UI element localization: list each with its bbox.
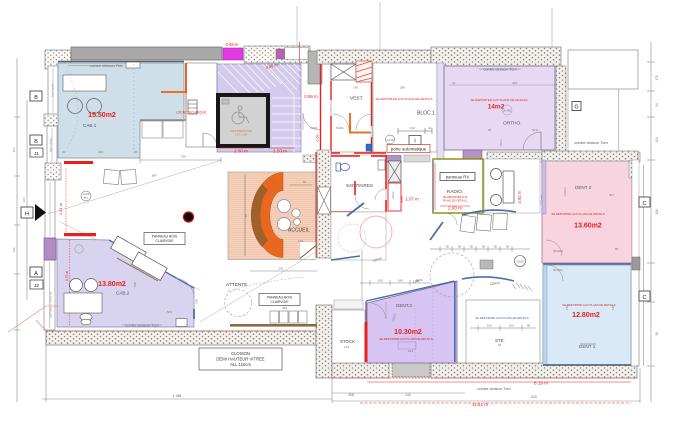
svg-text:CAB.2: CAB.2 [116, 291, 130, 296]
svg-text:12.80m2: 12.80m2 [572, 312, 600, 319]
svg-text:PLANS DE DETAILS: PLANS DE DETAILS [443, 199, 467, 203]
svg-text:198: 198 [133, 282, 137, 287]
svg-text:panneau RX: panneau RX [446, 175, 469, 180]
svg-text:I: I [414, 139, 416, 145]
svg-text:13.80m2: 13.80m2 [98, 281, 126, 288]
svg-text:20: 20 [62, 150, 66, 154]
svg-text:DENT.3: DENT.3 [396, 303, 412, 308]
svg-text:B: B [34, 95, 38, 101]
svg-text:118: 118 [655, 209, 659, 214]
svg-text:SANITAIRES: SANITAIRES [346, 183, 373, 188]
svg-text:36: 36 [244, 214, 248, 218]
svg-text:CLOISON: CLOISON [231, 351, 250, 356]
svg-text:ALL:110cm: ALL:110cm [230, 362, 251, 367]
svg-text:CAB.1: CAB.1 [83, 123, 97, 128]
svg-text:100: 100 [487, 324, 492, 328]
svg-text:1.81 m: 1.81 m [58, 202, 63, 215]
svg-text:baie oscillo: baie oscillo [51, 83, 55, 97]
svg-text:50: 50 [470, 245, 474, 249]
svg-text:36: 36 [134, 150, 138, 154]
svg-text:60x204: 60x204 [553, 268, 563, 272]
svg-text:porte automatique: porte automatique [391, 147, 427, 152]
svg-text:50 8: 50 8 [532, 128, 538, 132]
svg-text:LOCAL TECHNIQUE: LOCAL TECHNIQUE [176, 111, 206, 115]
svg-text:TA/DA: TA/DA [310, 126, 318, 130]
svg-text:baie avec 2 ouvrants: baie avec 2 ouvrants [49, 291, 53, 317]
svg-text:84: 84 [303, 180, 307, 184]
svg-text:contre cloison 7cm: contre cloison 7cm [477, 386, 511, 391]
svg-text:50: 50 [506, 245, 510, 249]
svg-text:DENT 1: DENT 1 [579, 344, 596, 349]
svg-text:436: 436 [12, 147, 16, 152]
svg-text:404: 404 [512, 81, 517, 85]
svg-text:124: 124 [655, 137, 659, 143]
svg-text:390: 390 [12, 247, 16, 252]
svg-text:13.60m2: 13.60m2 [574, 223, 602, 230]
svg-text:70: 70 [452, 81, 456, 85]
svg-text:0.99 m: 0.99 m [304, 94, 318, 99]
svg-text:1.00 x 1.30: 1.00 x 1.30 [235, 134, 248, 137]
svg-text:106: 106 [398, 279, 403, 283]
svg-text:A: A [34, 271, 38, 277]
svg-text:ACCUEIL: ACCUEIL [288, 228, 310, 234]
svg-text:11.61 m: 11.61 m [472, 402, 488, 407]
svg-text:34: 34 [655, 103, 659, 107]
svg-text:VEST.: VEST. [350, 96, 363, 102]
svg-text:175: 175 [655, 75, 659, 81]
svg-text:SE REPORTER AUX PLANS DE DETAI: SE REPORTER AUX PLANS DE DETAILS [379, 337, 432, 341]
svg-text:80: 80 [416, 279, 420, 283]
svg-text:58: 58 [655, 332, 659, 336]
svg-text:3.73 m: 3.73 m [65, 271, 69, 282]
svg-text:300: 300 [181, 155, 186, 159]
svg-text:128: 128 [22, 197, 26, 202]
svg-text:15.50m2: 15.50m2 [88, 112, 116, 119]
svg-text:C: C [642, 295, 646, 301]
svg-text:H: H [25, 212, 29, 218]
svg-text:200: 200 [98, 150, 103, 154]
svg-text:1.07 m: 1.07 m [405, 197, 419, 202]
svg-text:SE REPORTER AUX PLANS DE DETAI: SE REPORTER AUX PLANS DE DETAILS [475, 316, 528, 320]
svg-text:BLOC.1: BLOC.1 [417, 111, 435, 117]
svg-text:190: 190 [195, 299, 199, 304]
svg-text:10.30m2: 10.30m2 [394, 329, 422, 336]
svg-text:196: 196 [353, 86, 358, 90]
svg-text:ATTENTE: ATTENTE [226, 282, 248, 288]
svg-text:J1: J1 [34, 151, 39, 157]
svg-text:307: 307 [609, 193, 614, 197]
svg-text:87cm: 87cm [499, 138, 503, 146]
svg-text:2.00 m: 2.00 m [234, 149, 248, 154]
svg-text:50: 50 [494, 245, 498, 249]
svg-text:SE REPORTER AUX PLANS DE DETAI: SE REPORTER AUX PLANS DE DETAILS [470, 98, 527, 102]
svg-text:toilette: toilette [391, 191, 395, 199]
svg-text:0.69 m: 0.69 m [226, 42, 239, 47]
svg-text:620: 620 [531, 395, 537, 399]
svg-text:140: 140 [611, 305, 615, 310]
svg-text:50: 50 [446, 245, 450, 249]
svg-text:8.19 m: 8.19 m [534, 381, 548, 386]
svg-text:261: 261 [278, 267, 283, 271]
svg-text:SE REPORTER AUX PLANS DE DETAI: SE REPORTER AUX PLANS DE DETAILS [551, 212, 604, 216]
svg-text:ALL: ALL [84, 196, 89, 200]
svg-text:110cm: 110cm [563, 187, 567, 196]
svg-text:(H:45): (H:45) [503, 109, 511, 113]
svg-text:503: 503 [167, 310, 172, 314]
svg-text:+0.10: +0.10 [386, 138, 394, 142]
svg-text:CLAIRVOIE: CLAIRVOIE [155, 239, 174, 243]
svg-text:B: B [34, 139, 38, 145]
svg-text:92: 92 [498, 343, 502, 347]
svg-text:1.20 m: 1.20 m [273, 149, 287, 154]
svg-text:PANNEAU BOIS: PANNEAU BOIS [267, 296, 293, 300]
svg-text:DEMI HAUTEUR VITREE: DEMI HAUTEUR VITREE [216, 357, 264, 362]
svg-text:0.92 m: 0.92 m [517, 190, 522, 203]
svg-text:STOCK: STOCK [340, 339, 355, 344]
svg-text:+0.00: +0.00 [516, 260, 524, 264]
svg-text:+0.00: +0.00 [83, 192, 90, 196]
svg-text:PANNEAU BOIS: PANNEAU BOIS [152, 235, 178, 239]
svg-text:1 348: 1 348 [173, 394, 182, 398]
svg-text:baie oscillo: baie oscillo [49, 138, 53, 152]
svg-text:484: 484 [282, 306, 287, 310]
svg-text:C: C [642, 201, 646, 207]
svg-text:0.63: 0.63 [316, 135, 320, 142]
svg-text:TA/DA: TA/DA [336, 126, 344, 130]
svg-text:40: 40 [428, 126, 432, 130]
svg-text:G: G [574, 105, 578, 111]
svg-text:J2: J2 [34, 283, 39, 289]
svg-text:140: 140 [405, 393, 411, 397]
svg-text:RADIO.: RADIO. [447, 189, 464, 195]
svg-text:SE REPORTER AUX: SE REPORTER AUX [443, 195, 468, 199]
svg-text:90: 90 [488, 128, 492, 132]
svg-text:134: 134 [344, 345, 349, 349]
svg-text:ORTHO.: ORTHO. [503, 121, 522, 127]
svg-text:140: 140 [565, 305, 569, 310]
svg-text:286: 286 [400, 86, 405, 90]
svg-text:96: 96 [527, 324, 531, 328]
svg-text:contre cloison 7cm: contre cloison 7cm [574, 140, 608, 145]
svg-text:100: 100 [410, 126, 415, 130]
svg-text:50: 50 [482, 245, 486, 249]
svg-text:DENT 2: DENT 2 [575, 185, 592, 190]
svg-text:100: 100 [378, 279, 383, 283]
svg-text:SE REPORTER AUX PLANS DE DETAI: SE REPORTER AUX PLANS DE DETAILS [375, 97, 432, 101]
svg-text:308: 308 [348, 393, 354, 397]
svg-text:241: 241 [408, 349, 413, 353]
svg-text:100: 100 [509, 324, 514, 328]
svg-text:85: 85 [615, 247, 619, 251]
svg-text:SE REPORTER AUX PLANS DE DETAI: SE REPORTER AUX PLANS DE DETAILS [562, 303, 615, 307]
svg-text:CLAIRVOIE: CLAIRVOIE [270, 300, 289, 304]
svg-text:60x204: 60x204 [553, 249, 563, 253]
svg-text:50: 50 [458, 245, 462, 249]
